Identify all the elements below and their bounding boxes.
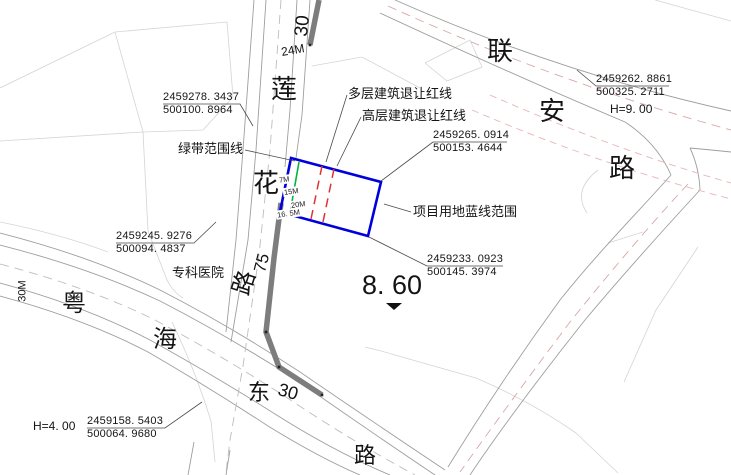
road-boundary-lines [0, 0, 731, 475]
coordinate-easting: 500153. 4644 [433, 142, 509, 155]
coordinate-easting: 500145. 3974 [427, 266, 503, 279]
site-blue-line-label: 项目用地蓝线范围 [413, 204, 517, 219]
coordinate-label-site-se: 2459233. 0923 500145. 3974 [427, 253, 503, 279]
road-name-lianan-char1: 联 [487, 36, 513, 66]
coordinate-northing: 2459265. 0914 [433, 129, 509, 142]
site-plan-map: 2459278. 3437 500100. 8964 2459265. 0914… [0, 0, 731, 475]
site-boundary-blue-line [280, 158, 381, 236]
coordinate-easting: 500325. 2711 [596, 86, 672, 99]
coordinate-label-site-ne: 2459265. 0914 500153. 4644 [433, 129, 509, 155]
coordinate-easting: 500064. 9680 [87, 428, 163, 441]
green-belt-label: 绿带范围线 [178, 141, 243, 156]
road-name-lianhua-char2: 花 [253, 168, 279, 198]
multi-storey-setback-label: 多层建筑退让红线 [348, 86, 452, 101]
setback-dim-7m: 7M [277, 174, 291, 185]
highrise-setback-label: 高层建筑退让红线 [362, 108, 466, 123]
road-width-dim-30m: 30M [17, 280, 30, 301]
coordinate-northing: 2459158. 5403 [87, 415, 163, 428]
road-centerlines-pink [388, 6, 731, 472]
setback-lines-along-lianan [472, 95, 731, 199]
coordinate-label-lianan: 2459262. 8861 500325. 2711 [596, 73, 672, 99]
coordinate-northing: 2459278. 3437 [163, 91, 239, 104]
hospital-label: 专科医院 [172, 265, 224, 280]
coordinate-label-w: 2459245. 9276 500094. 4837 [116, 230, 192, 256]
coordinate-northing: 2459262. 8861 [596, 73, 672, 86]
coordinate-northing: 2459245. 9276 [116, 230, 192, 243]
road-name-yuehai-char1: 粤 [62, 290, 86, 318]
height-annotation-south: H=4. 00 [33, 420, 75, 434]
coordinate-easting: 500094. 4837 [116, 243, 192, 256]
road-name-yuehai-char3: 东 [248, 380, 270, 406]
coordinate-label-sw: 2459158. 5403 500064. 9680 [87, 415, 163, 441]
map-canvas [0, 0, 731, 475]
height-annotation-north: H=9. 00 [610, 103, 652, 117]
road-number-lianhua-top: 30 [291, 14, 315, 37]
building-setback-red-lines [311, 166, 334, 222]
coordinate-northing: 2459233. 0923 [427, 253, 503, 266]
spot-elevation-value: 8. 60 [362, 270, 422, 301]
spot-elevation-marker [386, 303, 402, 310]
road-name-lianan-char2: 安 [539, 96, 565, 126]
road-name-yuehai-char2: 海 [153, 326, 177, 354]
road-name-lianan-char3: 路 [609, 153, 635, 183]
coordinate-label-nw: 2459278. 3437 500100. 8964 [163, 91, 239, 117]
road-centerlines-gray [0, 0, 415, 475]
coordinate-easting: 500100. 8964 [163, 104, 239, 117]
road-name-yuehai-char4: 路 [354, 443, 376, 469]
road-name-lianhua-char1: 莲 [271, 74, 297, 104]
